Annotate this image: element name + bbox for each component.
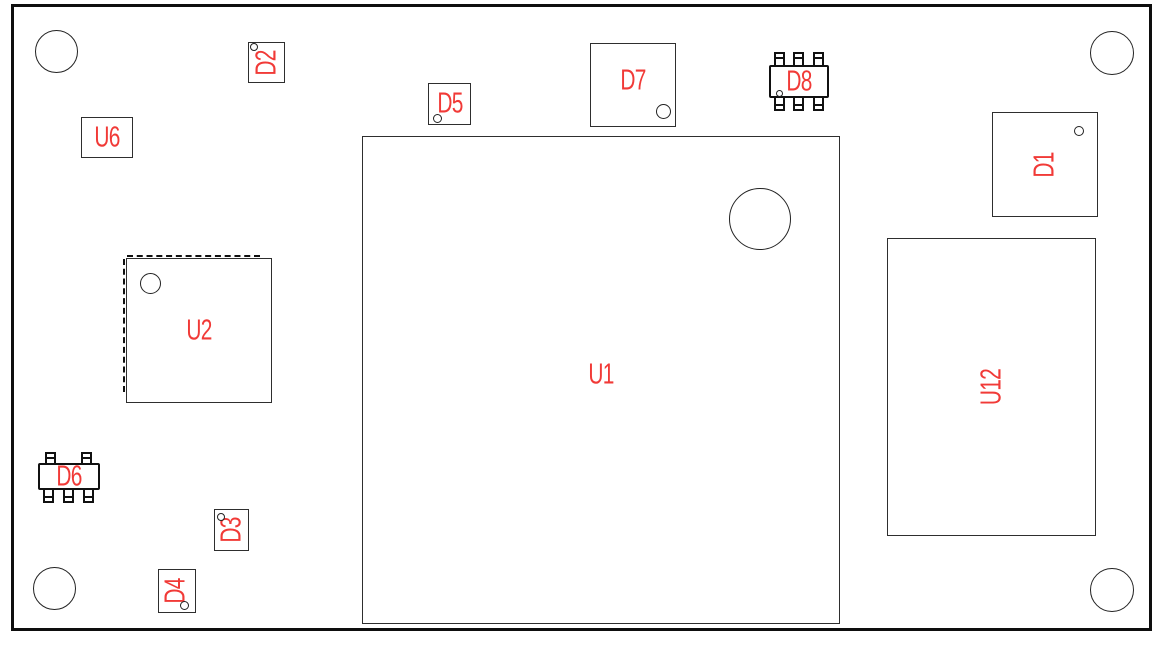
ic-pin [43,488,54,503]
component-D2: D2 [248,42,285,83]
pin1-marker-circle [217,513,225,521]
pin1-marker-circle [180,601,189,610]
designator-U12: U12 [977,369,1006,405]
ic-pin [774,96,785,111]
component-D4: D4 [158,569,196,613]
ic-pin [793,96,804,111]
pin1-marker-circle [433,114,442,123]
component-D7: D7 [590,43,676,127]
component-U6: U6 [81,117,133,158]
pin1-marker-circle [250,43,258,51]
ic-pin [813,96,824,111]
pin1-marker-circle [140,273,161,294]
component-U1: U1 [362,136,840,624]
component-D5: D5 [428,83,471,125]
component-D6: D6 [38,452,100,503]
designator-D7: D7 [620,66,645,95]
component-U2: U2 [126,258,272,403]
designator-D1: D1 [1031,152,1060,177]
ic-body: D6 [38,463,100,490]
mounting-hole-top-right [1090,31,1134,75]
component-U12: U12 [887,238,1096,536]
designator-D4: D4 [161,578,190,603]
mounting-hole-top-left [35,30,78,73]
pin1-marker-circle [1074,126,1084,136]
designator-D5: D5 [437,90,462,119]
pin-row-dashed-edge-left [123,259,125,392]
designator-U2: U2 [186,316,211,345]
assembly-drawing: U6 D2 D5 D7 D8 [0,0,1166,647]
ic-body: D8 [769,65,829,98]
designator-U6: U6 [94,123,119,152]
designator-U1: U1 [588,361,613,390]
pin1-marker-circle [656,104,671,119]
ic-pin [83,488,94,503]
mounting-hole-bottom-right [1090,568,1134,612]
designator-D6: D6 [56,462,81,491]
designator-D2: D2 [252,50,281,75]
mounting-hole-bottom-left [33,567,76,610]
component-D3: D3 [214,509,249,551]
component-D1: D1 [992,112,1098,217]
designator-D8: D8 [786,67,811,96]
pin1-marker-circle [729,188,791,250]
pcb-board-outline: U6 D2 D5 D7 D8 [11,4,1152,631]
designator-D3: D3 [217,517,246,542]
pin-row-dashed-edge-top [127,255,260,257]
pin1-marker-circle [776,90,783,97]
component-D8: D8 [769,52,829,111]
